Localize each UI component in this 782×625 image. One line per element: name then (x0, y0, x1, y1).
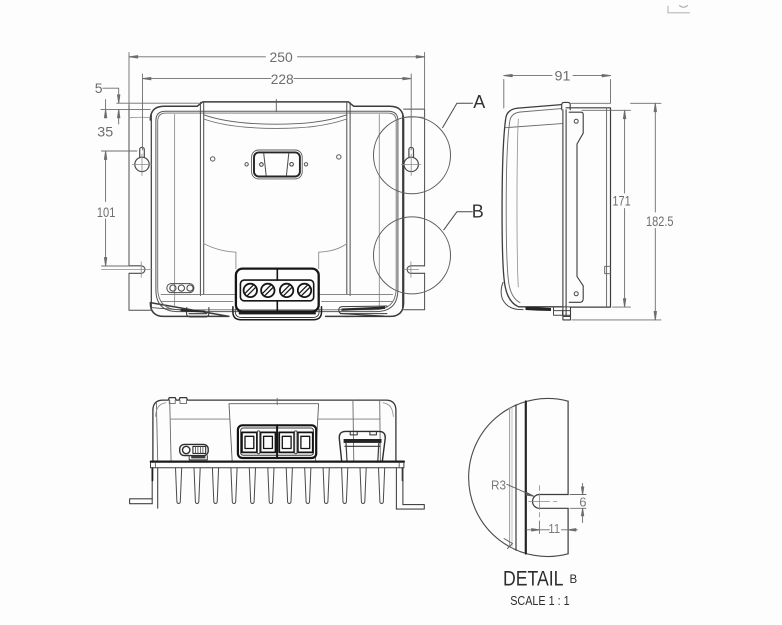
svg-text:B: B (570, 574, 578, 586)
svg-text:5: 5 (95, 80, 103, 96)
svg-text:R3: R3 (491, 477, 506, 492)
svg-text:182.5: 182.5 (646, 213, 674, 229)
svg-text:250: 250 (270, 49, 293, 65)
svg-text:6: 6 (579, 495, 586, 510)
svg-text:DETAIL: DETAIL (503, 568, 564, 591)
svg-text:SCALE 1 : 1: SCALE 1 : 1 (510, 593, 570, 608)
svg-text:171: 171 (612, 193, 630, 209)
svg-text:228: 228 (271, 71, 294, 87)
svg-text:101: 101 (97, 204, 116, 220)
svg-text:11: 11 (548, 521, 560, 536)
svg-text:35: 35 (97, 123, 113, 139)
svg-text:B: B (472, 202, 484, 222)
svg-text:A: A (473, 92, 485, 112)
svg-text:91: 91 (555, 68, 571, 84)
